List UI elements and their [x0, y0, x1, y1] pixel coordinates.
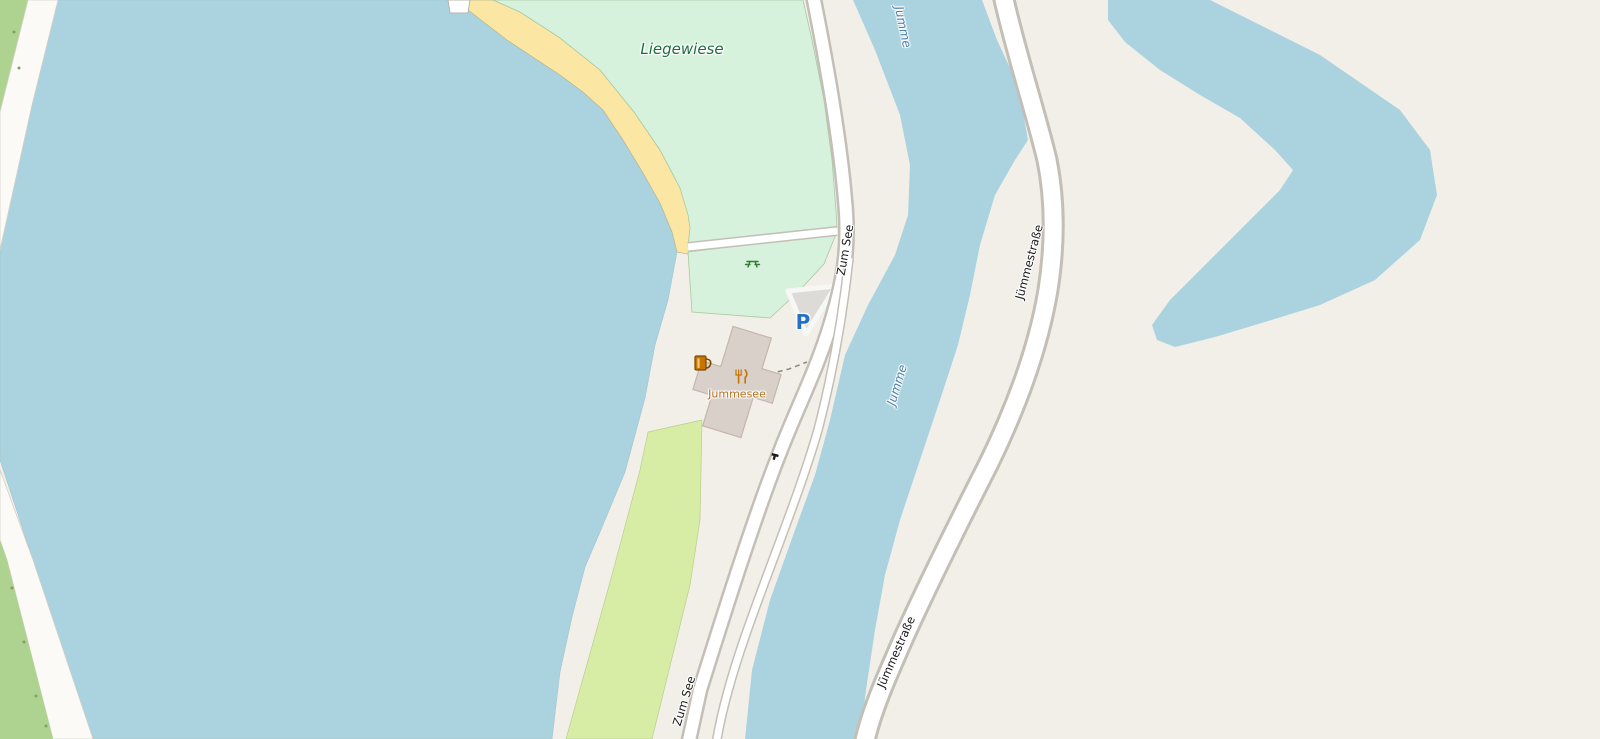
building-small-shore — [448, 0, 470, 13]
map-canvas[interactable]: Liegewiese Jumme Jumme Zum See Zum See J… — [0, 0, 1600, 739]
map-layers — [0, 0, 1600, 739]
